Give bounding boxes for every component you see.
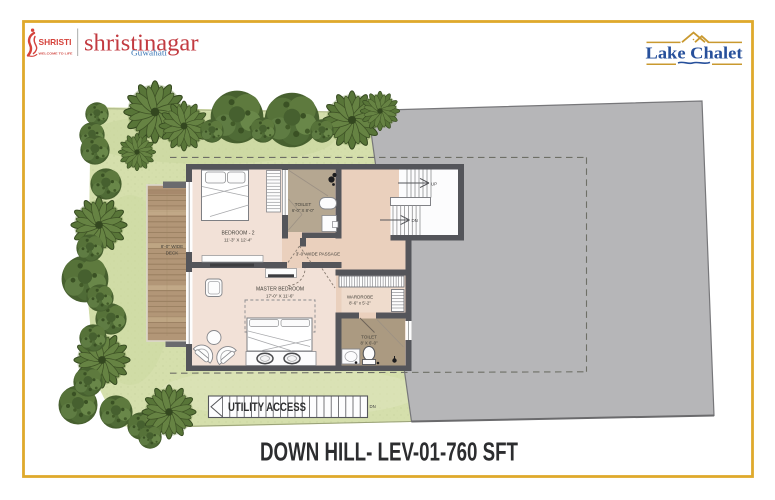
svg-text:BEDROOM - 2: BEDROOM - 2 — [221, 231, 254, 237]
svg-text:8'-6" x 5'-2": 8'-6" x 5'-2" — [349, 301, 371, 306]
svg-text:Lake Chalet: Lake Chalet — [646, 43, 743, 62]
svg-text:WARDROBE: WARDROBE — [347, 295, 373, 300]
svg-text:8'-0" WIDE: 8'-0" WIDE — [161, 244, 183, 249]
svg-text:17'-0" X 11'-6": 17'-0" X 11'-6" — [266, 294, 294, 299]
svg-text:DECK: DECK — [166, 251, 180, 256]
svg-text:6'-0" X 8'-0": 6'-0" X 8'-0" — [292, 208, 315, 213]
svg-text:MASTER BEDROOM: MASTER BEDROOM — [256, 287, 304, 293]
svg-text:SHRISTI: SHRISTI — [39, 37, 72, 47]
svg-text:WELCOME TO LIFE: WELCOME TO LIFE — [39, 52, 73, 56]
svg-text:TOILET: TOILET — [361, 335, 377, 340]
svg-text:Guwahati: Guwahati — [131, 48, 168, 58]
svg-text:DN: DN — [412, 218, 418, 223]
svg-text:11'-3" X 12'-4": 11'-3" X 12'-4" — [224, 238, 252, 243]
svg-text:DOWN HILL- LEV-01-760 SFT: DOWN HILL- LEV-01-760 SFT — [260, 437, 518, 467]
svg-text:UP: UP — [431, 181, 437, 186]
svg-text:DN: DN — [370, 404, 376, 409]
svg-text:3'-0" WIDE PASSAGE: 3'-0" WIDE PASSAGE — [296, 252, 340, 257]
svg-text:UTILITY ACCESS: UTILITY ACCESS — [228, 400, 306, 414]
svg-text:8' X 6'-0": 8' X 6'-0" — [360, 341, 377, 346]
